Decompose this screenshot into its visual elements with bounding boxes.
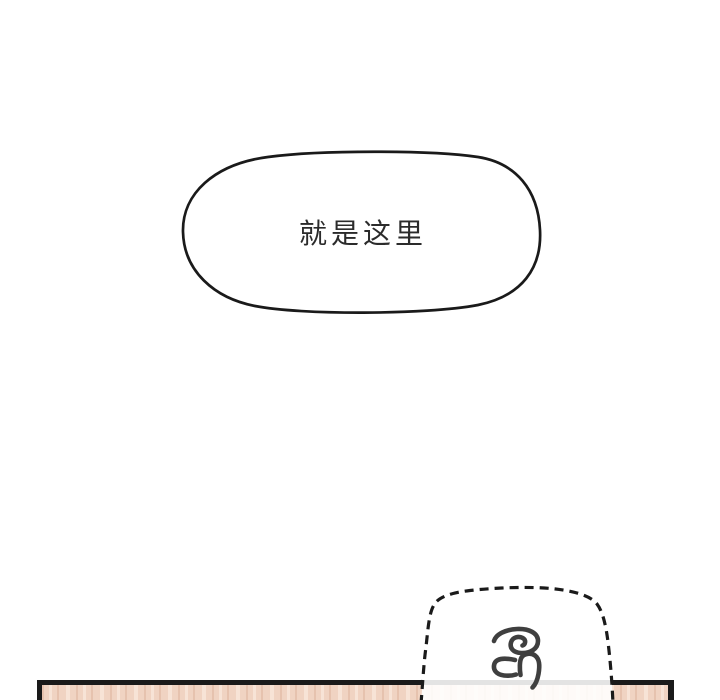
comic-art-layer — [0, 0, 720, 700]
dashed-bubble — [421, 587, 613, 700]
speech-text: 就是这里 — [240, 217, 486, 250]
